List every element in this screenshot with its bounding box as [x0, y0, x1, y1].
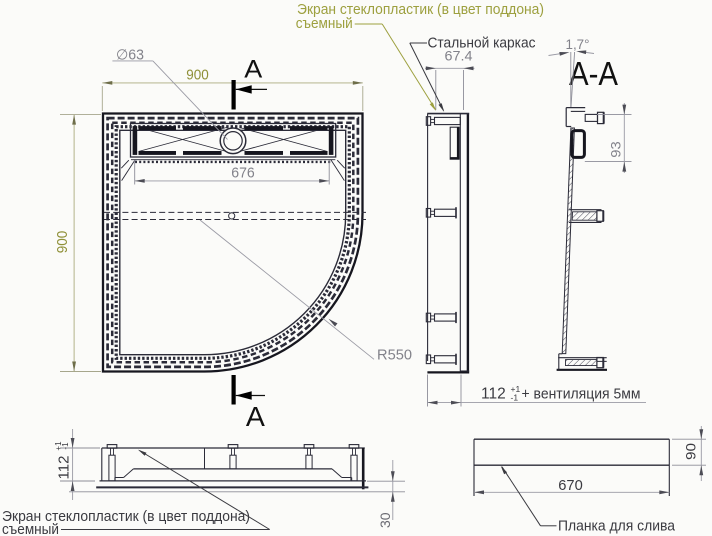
svg-text:R550: R550 [377, 348, 412, 364]
svg-text:112: 112 [56, 456, 73, 480]
svg-text:-1: -1 [61, 442, 70, 450]
svg-text:Стальной каркас: Стальной каркас [428, 36, 536, 52]
svg-text:+ вентиляция 5мм: + вентиляция 5мм [522, 387, 641, 403]
svg-text:900: 900 [186, 67, 209, 84]
svg-text:670: 670 [558, 477, 583, 494]
svg-text:A-A: A-A [569, 55, 618, 92]
svg-text:93: 93 [608, 141, 624, 158]
svg-text:Планка для слива: Планка для слива [558, 518, 676, 535]
svg-text:30: 30 [377, 512, 393, 528]
svg-text:112: 112 [481, 386, 506, 403]
svg-text:съемный: съемный [296, 16, 353, 32]
svg-text:съемный: съемный [2, 522, 59, 536]
svg-text:90: 90 [683, 443, 699, 460]
svg-text:1,7°: 1,7° [566, 36, 590, 52]
svg-text:A: A [246, 401, 265, 432]
svg-text:676: 676 [231, 165, 255, 182]
svg-text:A: A [244, 56, 262, 84]
svg-text:-1: -1 [511, 393, 519, 403]
svg-text:900: 900 [54, 231, 71, 254]
